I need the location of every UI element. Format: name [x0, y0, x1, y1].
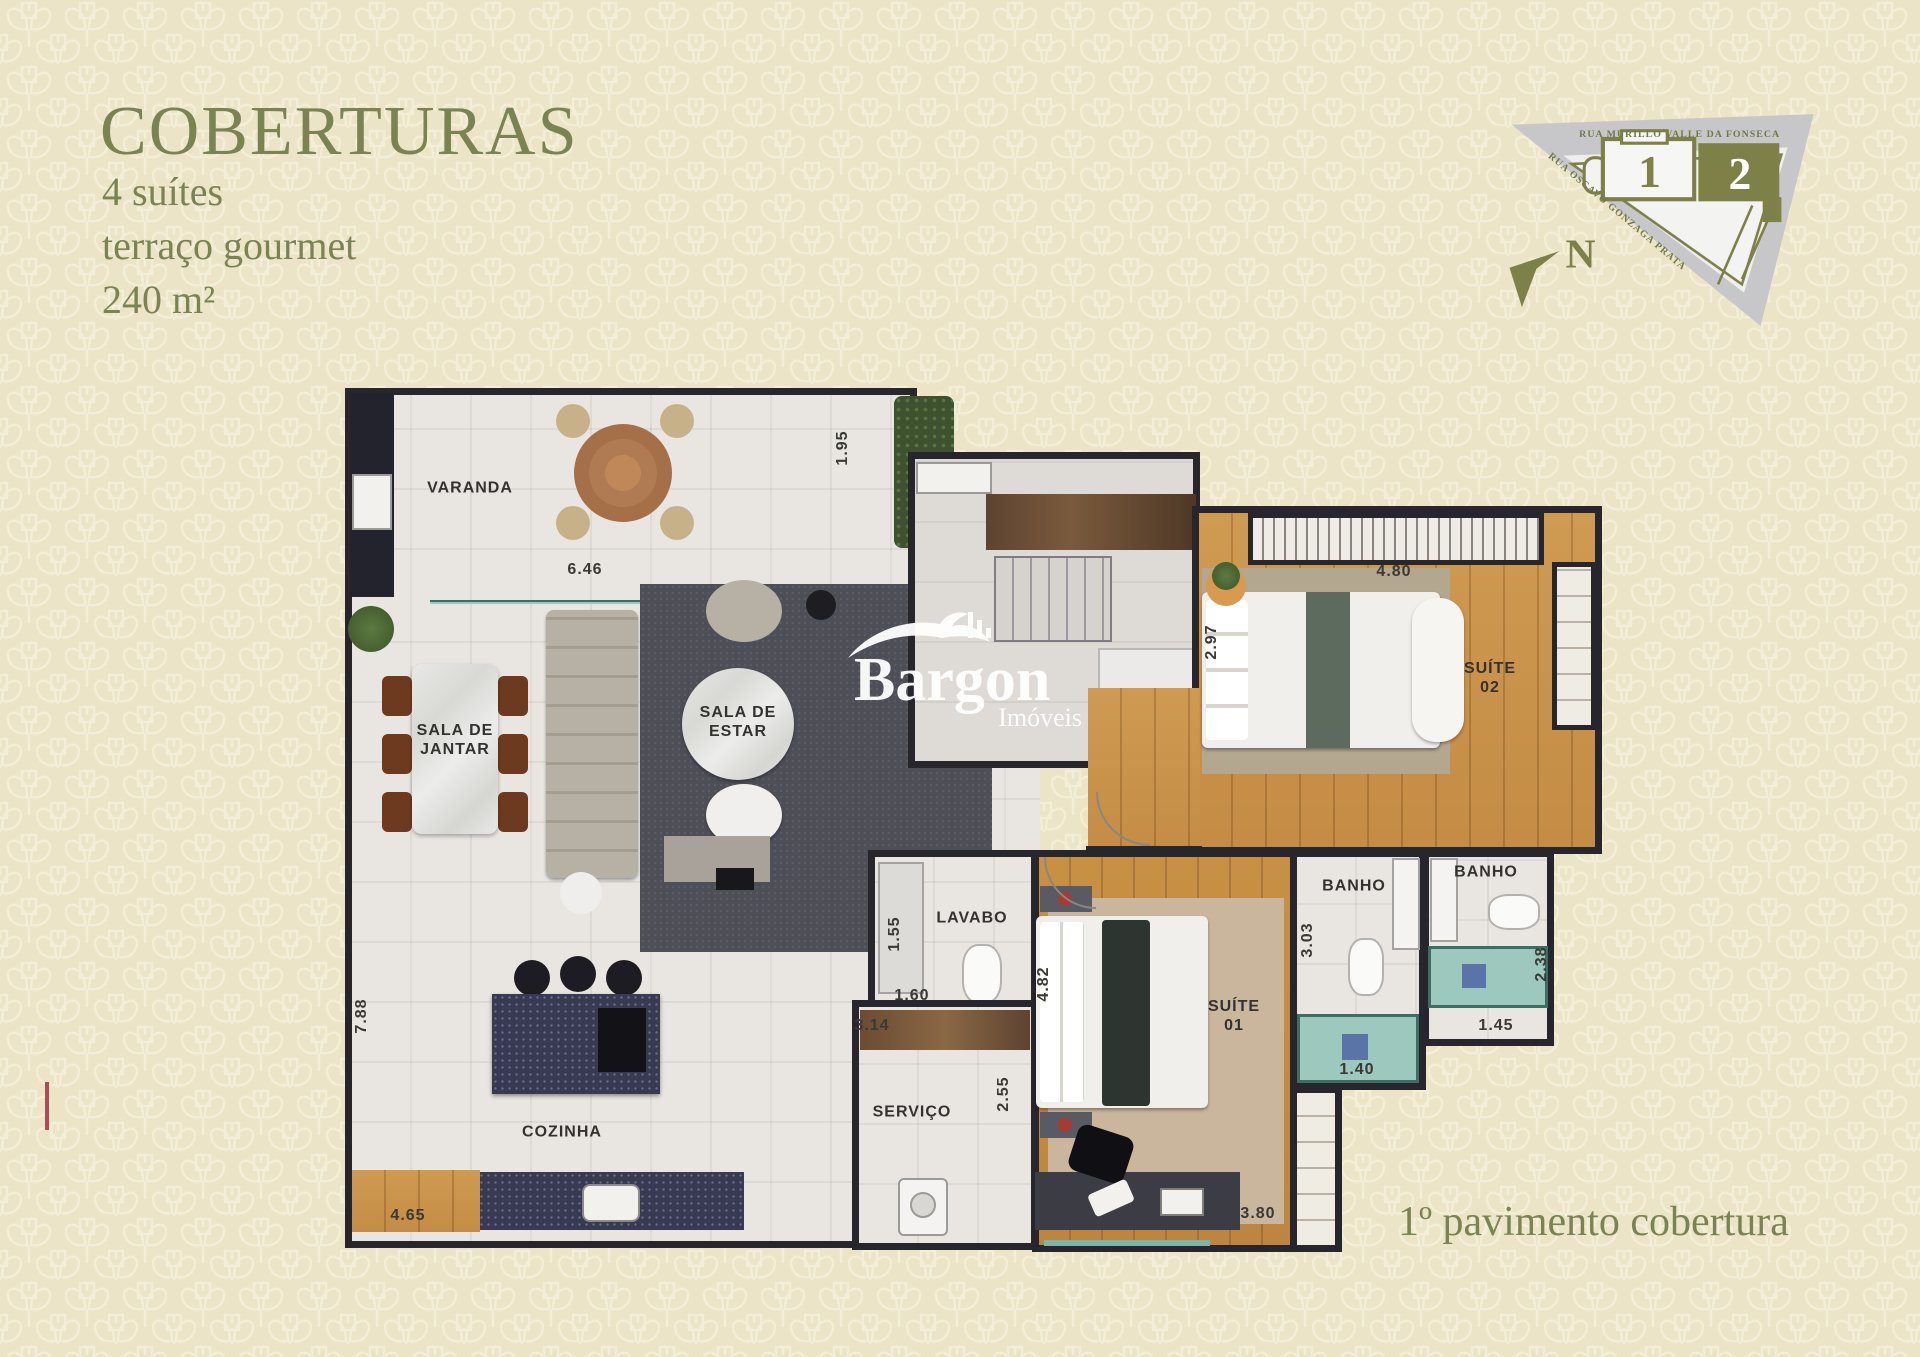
suite-01-throw — [1102, 920, 1150, 1106]
washer-door — [910, 1192, 936, 1218]
terrace-chair — [556, 506, 590, 540]
room-label-lavabo: LAVABO — [936, 909, 1007, 928]
page: COBERTURAS 4 suítes terraço gourmet 240 … — [0, 0, 1920, 1357]
lavabo-toilet — [962, 944, 1002, 1004]
dining-chair — [498, 792, 528, 832]
stool — [514, 960, 550, 996]
black-side-table — [806, 590, 836, 620]
suite-01-pillows — [1040, 922, 1084, 1102]
dimension-label: 1.60 — [894, 987, 929, 1005]
dimension-label: 6.46 — [567, 561, 602, 579]
tv — [716, 868, 754, 890]
room-label-varanda: VARANDA — [427, 479, 513, 498]
desk — [1035, 1172, 1240, 1230]
dimension-label: 4.82 — [1035, 966, 1053, 1001]
dimension-label: 2.97 — [1203, 624, 1221, 659]
dimension-label: 2.38 — [1533, 946, 1551, 981]
dimension-label: 3.03 — [1299, 922, 1317, 957]
dimension-label: 1.40 — [1339, 1061, 1374, 1079]
terrace-chair — [660, 506, 694, 540]
dimension-label: 3.14 — [854, 1017, 889, 1035]
plant — [348, 606, 394, 652]
suite-02-plant — [1212, 562, 1240, 590]
dimension-label: 4.65 — [390, 1207, 425, 1225]
dimension-label: 1.55 — [886, 916, 904, 951]
dimension-label: 3.80 — [1240, 1205, 1275, 1223]
suite-02-pillows — [1206, 600, 1248, 740]
dimension-label: 4.80 — [1376, 563, 1411, 581]
terrace-chair — [556, 404, 590, 438]
banho-1-sink — [1392, 858, 1420, 950]
dining-chair — [498, 734, 528, 774]
suite-02-wardrobe — [1248, 513, 1544, 565]
floor-plan: VARANDA SALA DE JANTAR SALA DE ESTAR COZ… — [0, 0, 1920, 1357]
hall-sideboard — [986, 494, 1196, 550]
lamp — [1058, 1118, 1072, 1132]
armchair — [706, 580, 782, 642]
room-label-sala-estar: SALA DE ESTAR — [700, 703, 777, 741]
room-label-cozinha: COZINHA — [522, 1123, 602, 1142]
banho-1-toilet — [1348, 938, 1384, 996]
cooktop — [598, 1008, 646, 1072]
terrace-round-table — [574, 424, 672, 522]
room-label-suite-02: SUÍTE 02 — [1464, 659, 1516, 697]
dimension-label: 7.88 — [353, 998, 371, 1033]
room-label-banho-2: BANHO — [1454, 863, 1518, 882]
suite-01-window — [1044, 1240, 1210, 1246]
varanda-sink — [352, 474, 392, 530]
sofa — [546, 610, 638, 878]
floor-caption: 1º pavimento cobertura — [1398, 1198, 1789, 1246]
suite-02-runner — [1306, 592, 1350, 748]
desk-monitor — [1160, 1188, 1204, 1216]
banho-2-toilet — [1488, 894, 1540, 930]
terrace-chair — [660, 404, 694, 438]
banho-2-shower — [1428, 946, 1548, 1008]
hall-entry — [916, 462, 992, 494]
dining-chair — [498, 676, 528, 716]
kitchen-sink — [582, 1184, 640, 1222]
room-label-servico: SERVIÇO — [873, 1103, 952, 1122]
suite-02-closet — [1552, 562, 1596, 730]
dining-chair — [382, 792, 412, 832]
dining-chair — [382, 676, 412, 716]
room-label-suite-01: SUÍTE 01 — [1208, 997, 1260, 1035]
stool — [606, 960, 642, 996]
suite-02-bench — [1412, 598, 1464, 742]
dining-chair — [382, 734, 412, 774]
suite-01-closet — [1290, 1086, 1342, 1252]
staircase — [994, 556, 1112, 642]
wall-segment — [1086, 846, 1202, 855]
shower-head — [1342, 1034, 1368, 1060]
room-label-banho-1: BANHO — [1322, 877, 1386, 896]
shower-head — [1462, 964, 1486, 988]
stool — [560, 956, 596, 992]
dimension-label: 1.45 — [1478, 1017, 1513, 1035]
dimension-label: 1.95 — [834, 430, 852, 465]
dimension-label: 2.55 — [995, 1076, 1013, 1111]
side-table — [560, 872, 602, 914]
room-label-sala-jantar: SALA DE JANTAR — [417, 721, 494, 759]
